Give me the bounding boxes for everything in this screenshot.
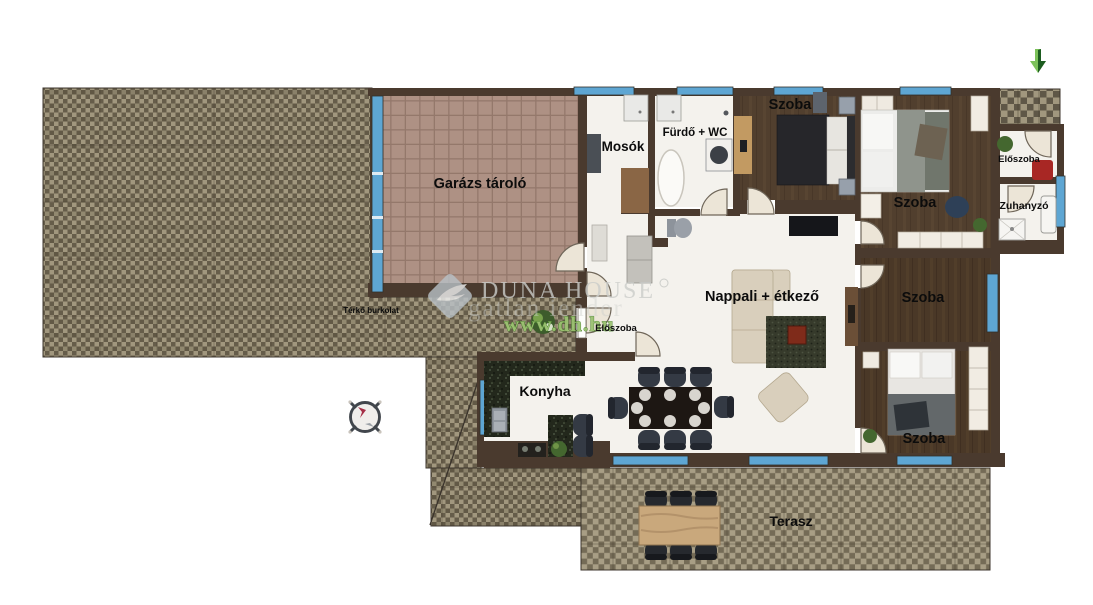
- svg-text:Mosók: Mosók: [602, 139, 645, 154]
- svg-text:Szoba: Szoba: [769, 97, 813, 113]
- svg-text:Konyha: Konyha: [519, 383, 571, 399]
- svg-text:Előszoba: Előszoba: [998, 154, 1040, 165]
- svg-text:Nappali + étkező: Nappali + étkező: [705, 289, 819, 305]
- svg-text:Térkő burkolat: Térkő burkolat: [343, 306, 399, 315]
- svg-text:Terasz: Terasz: [769, 513, 812, 529]
- svg-text:Fürdő + WC: Fürdő + WC: [663, 127, 728, 139]
- svg-text:Szoba: Szoba: [903, 431, 947, 447]
- svg-text:Garázs tároló: Garázs tároló: [434, 176, 527, 192]
- svg-text:Előszoba: Előszoba: [595, 323, 637, 334]
- svg-text:Zuhanyzó: Zuhanyzó: [1000, 200, 1049, 212]
- svg-text:Szoba: Szoba: [894, 195, 938, 211]
- svg-text:Szoba: Szoba: [902, 290, 946, 306]
